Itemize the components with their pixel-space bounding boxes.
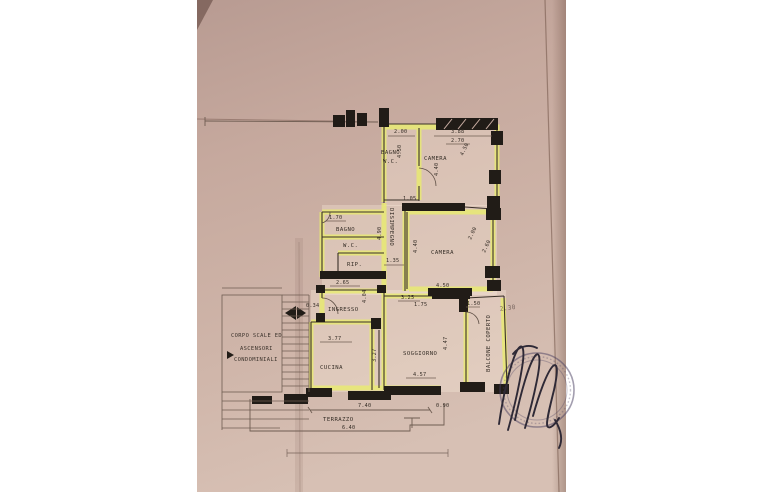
dim-camera-mid-depth: 4.40 (413, 240, 419, 253)
stairwell-label-line3: CONDOMINIALI (234, 357, 278, 363)
dim-bagno-top-depth: 4.50 (397, 145, 403, 158)
room-label-soggiorno: SOGGIORNO (403, 351, 438, 357)
room-label-cucina: CUCINA (320, 365, 343, 371)
dim-bagno-mid-width: 1.70 (329, 215, 342, 221)
dim-ingresso-door: 0.34 (306, 303, 319, 309)
stairwell-label-line2: ASCENSORI (240, 346, 273, 352)
dim-soggiorno-width: 4.57 (413, 372, 426, 378)
room-label-rip: RIP. (347, 262, 362, 268)
dim-terrazzo-step: 0.90 (436, 403, 449, 409)
dim-camera-mid-top: 1.05 (403, 196, 416, 202)
dim-camera-top-width: 3.88 (451, 129, 464, 135)
room-label-camera-mid: CAMERA (431, 250, 454, 256)
floor-plan-canvas: CORPO SCALE ED ASCENSORI CONDOMINIALI BA… (0, 0, 764, 492)
stairwell-label-line1: CORPO SCALE ED (231, 333, 282, 339)
room-label-disimpegno: DISIMPEGNO (388, 208, 394, 246)
dim-ingresso-length: 4.04 (362, 290, 368, 303)
room-label-bagno-mid: BAGNO (336, 227, 355, 233)
dim-camera-mid-width: 4.50 (436, 283, 449, 289)
dim-bagno-top-width: 2.00 (394, 129, 407, 135)
room-label-ingresso: INGRESSO (328, 307, 359, 313)
dim-soggiorno-top-b: 1.75 (414, 302, 427, 308)
room-label-camera-top: CAMERA (424, 156, 447, 162)
dim-balcone-top: 1.50 (467, 301, 480, 307)
room-label-wc-mid: W.C. (343, 243, 358, 249)
room-label-balcone: BALCONE COPERTO (486, 315, 492, 372)
room-label-wc-top: W.C. (383, 159, 398, 165)
dim-cucina-side: 3.27 (372, 349, 378, 362)
room-label-terrazzo: TERRAZZO (323, 417, 354, 423)
dim-camera-top-depth: 4.40 (434, 163, 440, 176)
dim-terrazzo-width: 7.40 (358, 403, 371, 409)
dim-soggiorno-top-a: 3.25 (401, 295, 414, 301)
dim-cucina-width: 3.77 (328, 336, 341, 342)
dim-disimpegno-width: 1.35 (386, 258, 399, 264)
dim-bagno-mid-bottom: 2.65 (336, 280, 349, 286)
dim-terrazzo-inner: 6.40 (342, 425, 355, 431)
dim-disimpegno-length: 4.90 (377, 227, 383, 240)
floor-plan-photo: CORPO SCALE ED ASCENSORI CONDOMINIALI BA… (0, 0, 764, 492)
dim-camera-top-width-inner: 2.70 (451, 138, 464, 144)
dim-soggiorno-side: 4.47 (443, 337, 449, 350)
